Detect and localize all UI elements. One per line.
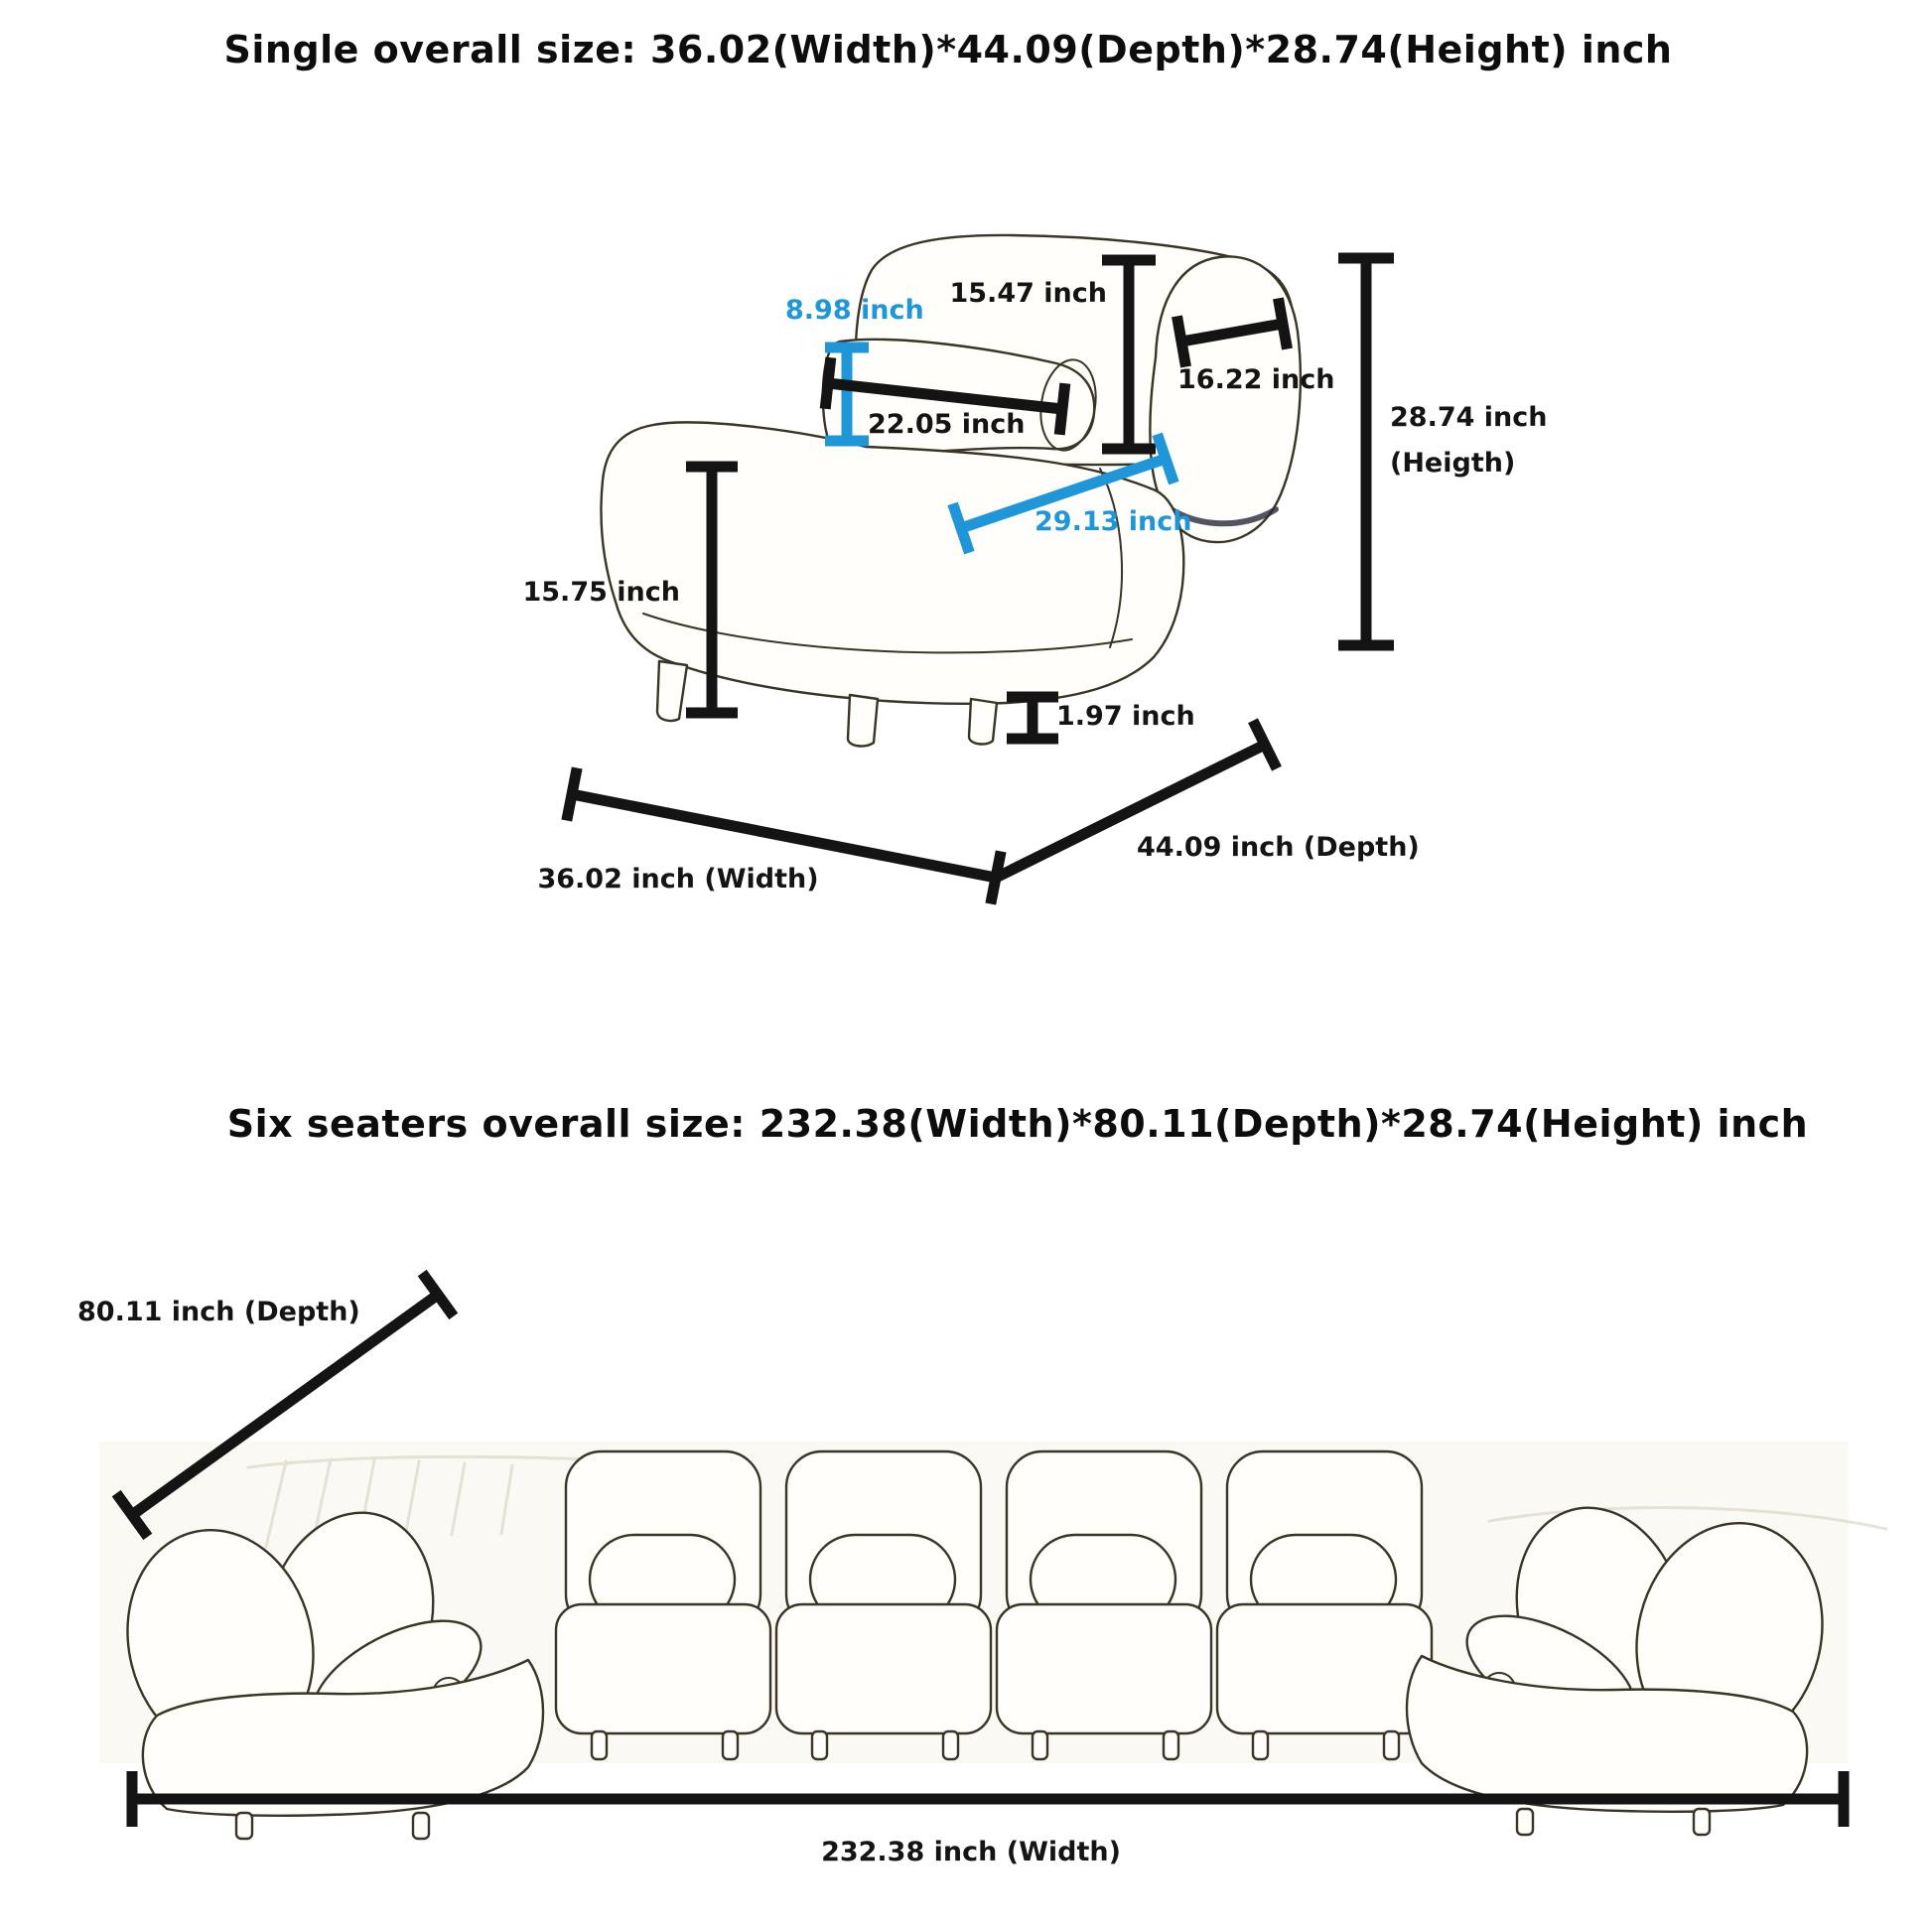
seat2-leg-a — [812, 1731, 827, 1759]
pillow-height-label: 8.98 inch — [785, 295, 924, 326]
middle-seat-3 — [997, 1451, 1211, 1759]
overall-height-suffix: (Heigth) — [1390, 441, 1548, 486]
chair-leg-front-left — [848, 695, 878, 746]
seat1-base — [556, 1604, 770, 1733]
overall-height-label: 28.74 inch (Heigth) — [1390, 395, 1548, 486]
seat-height-label: 15.75 inch — [447, 577, 680, 608]
product-dimension-sheet: { "colors": { "dimension_black": "#14141… — [0, 0, 1932, 1932]
seat1-leg-a — [592, 1731, 607, 1759]
left-chair-leg-a — [236, 1813, 252, 1839]
middle-seat-2 — [776, 1451, 991, 1759]
dim-line-overall-height — [1338, 258, 1394, 645]
chair-leg-front-right — [969, 699, 997, 744]
middle-seat-1 — [556, 1451, 770, 1759]
single-diagram-title: Single overall size: 36.02(Width)*44.09(… — [20, 28, 1876, 71]
six-seater-scene — [99, 1273, 1886, 1839]
seat2-base — [776, 1604, 991, 1733]
diagram-stage: Single overall size: 36.02(Width)*44.09(… — [0, 0, 1932, 1932]
seat3-leg-b — [1164, 1731, 1178, 1759]
six-depth-label: 80.11 inch (Depth) — [77, 1297, 360, 1327]
seat3-leg-a — [1033, 1731, 1047, 1759]
middle-seat-4 — [1217, 1451, 1432, 1759]
pillow-length-label: 22.05 inch — [868, 409, 1026, 440]
left-chair-leg-b — [413, 1813, 429, 1839]
six-width-label: 232.38 inch (Width) — [812, 1837, 1130, 1867]
right-chair-leg-b — [1694, 1809, 1710, 1835]
six-seater-title: Six seaters overall size: 232.38(Width)*… — [89, 1102, 1932, 1146]
seat1-leg-b — [723, 1731, 738, 1759]
seat4-leg-a — [1253, 1731, 1268, 1759]
single-chair-sketch — [602, 235, 1301, 747]
seat4-base — [1217, 1604, 1432, 1733]
overall-height-value: 28.74 inch — [1390, 395, 1548, 441]
right-chair-leg-a — [1517, 1809, 1533, 1835]
single-depth-label: 44.09 inch (Depth) — [1137, 832, 1420, 863]
chair-leg-rear — [657, 661, 687, 721]
seat-depth-label: 29.13 inch — [1035, 506, 1192, 537]
seat4-leg-b — [1384, 1731, 1399, 1759]
leg-height-label: 1.97 inch — [1056, 701, 1195, 732]
seat3-base — [997, 1604, 1211, 1733]
single-width-label: 36.02 inch (Width) — [524, 864, 832, 895]
backrest-width-label: 16.22 inch — [1177, 364, 1335, 395]
seat2-leg-b — [943, 1731, 958, 1759]
